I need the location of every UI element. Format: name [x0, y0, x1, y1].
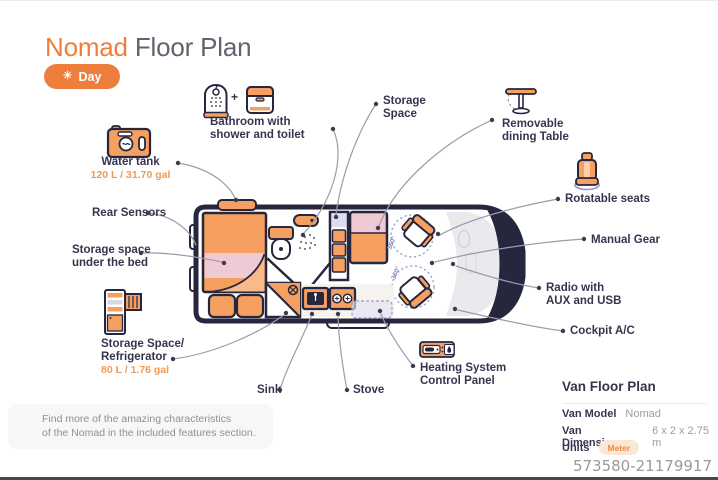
roof-water-tank [218, 200, 256, 210]
value-refrigerator: 80 L / 1.76 gal [101, 364, 169, 376]
water-tank-icon [106, 125, 152, 159]
leader-storage-space [336, 104, 376, 215]
leader-manual-gear [435, 239, 584, 262]
van-body [196, 207, 523, 321]
page-title: Nomad Floor Plan [45, 32, 251, 63]
label-cockpit-ac: Cockpit A/C [570, 325, 635, 338]
label-bathroom: Bathroom with shower and toilet [210, 116, 305, 142]
kitchen-stove [330, 288, 355, 309]
label-under-bed: Storage space under the bed [72, 244, 151, 270]
swivel-seat-front-right [396, 272, 435, 310]
rotation-angle-label: 360° [385, 235, 398, 251]
sun-icon: ☀ [63, 71, 73, 82]
info-row-value: 6 x 2 x 2.75 m [652, 425, 718, 449]
plus-separator: + [231, 90, 238, 104]
bed-cushion [209, 295, 235, 317]
day-mode-label: Day [78, 70, 101, 84]
label-refrigerator: Storage Space/ Refrigerator [101, 338, 184, 364]
label-heating: Heating System Control Panel [420, 362, 506, 388]
heating-panel-icon [419, 341, 455, 358]
info-row-van-model: Van Model Nomad [562, 408, 661, 420]
info-row-units: Units Meter [562, 440, 639, 455]
value-water-tank: 120 L / 31.70 gal [88, 169, 173, 181]
page-title-accent: Nomad [45, 32, 128, 62]
shower-icon [203, 83, 229, 119]
label-radio: Radio with AUX and USB [546, 282, 621, 308]
label-dining-table: Removable dining Table [502, 118, 569, 144]
label-sink: Sink [257, 384, 281, 397]
bathroom-area [268, 215, 330, 285]
units-badge[interactable]: Meter [599, 440, 640, 455]
label-rear-sensors: Rear Sensors [92, 207, 166, 220]
toilet-bowl [272, 239, 290, 259]
center-console [466, 253, 476, 273]
toilet [269, 227, 293, 239]
swivel-seat-front-left [399, 212, 438, 250]
leader-stove [338, 317, 347, 390]
leader-bathroom [304, 129, 338, 233]
leader-dining-table [379, 120, 492, 226]
bathroom-sink [294, 215, 318, 226]
watermark: 573580-21179917 [573, 457, 712, 475]
leader-heating [381, 314, 413, 366]
van-hood [489, 210, 520, 318]
rotation-angle-label: 360° [389, 265, 402, 281]
rear-bed [203, 213, 266, 292]
rotation-circle [391, 215, 433, 257]
note-box: Find more of the amazing characteristics… [8, 404, 273, 449]
corner-cabinet [266, 283, 300, 317]
leader-under-bed [141, 253, 222, 262]
leader-dots [139, 102, 586, 392]
kitchen-sink [303, 288, 328, 309]
page-title-rest: Floor Plan [128, 32, 252, 62]
rotation-circle [392, 266, 434, 308]
floor-plan-page: Nomad Floor Plan ☀ Day [0, 0, 718, 480]
leader-rotatable-seats [440, 199, 558, 235]
heating-zone [352, 301, 392, 318]
leader-water-tank [178, 163, 235, 198]
entry-step [327, 315, 389, 328]
info-panel-divider [562, 403, 707, 404]
info-row-label: Units [562, 442, 590, 454]
leader-sink [280, 317, 311, 390]
label-rotatable-seats: Rotatable seats [565, 193, 650, 206]
shower-walls [268, 259, 330, 285]
windshield [446, 212, 504, 316]
storage-column [330, 212, 348, 280]
rotatable-seat-icon [572, 151, 602, 193]
refrigerator-icon [103, 288, 143, 336]
leader-cockpit-ac [458, 310, 563, 331]
dining-table-icon [503, 86, 539, 116]
rear-sensor-tab [190, 225, 196, 249]
dinette [350, 212, 387, 263]
label-water-tank: Water tank [88, 156, 173, 169]
day-mode-button[interactable]: ☀ Day [44, 64, 120, 89]
info-panel-title: Van Floor Plan [562, 379, 656, 394]
info-row-value: Nomad [625, 408, 660, 420]
info-row-label: Van Model [562, 408, 616, 420]
label-storage-space: Storage Space [383, 95, 426, 121]
kitchen-counter [298, 284, 394, 317]
toilet-icon [245, 85, 275, 115]
rear-sensor-tab [190, 267, 196, 291]
leader-refrigerator [173, 315, 284, 359]
label-stove: Stove [353, 384, 384, 397]
bed-cushion [237, 295, 263, 317]
label-manual-gear: Manual Gear [591, 234, 660, 247]
steering-wheel [459, 231, 470, 248]
leader-radio [456, 266, 539, 288]
shower-spray [299, 234, 316, 250]
